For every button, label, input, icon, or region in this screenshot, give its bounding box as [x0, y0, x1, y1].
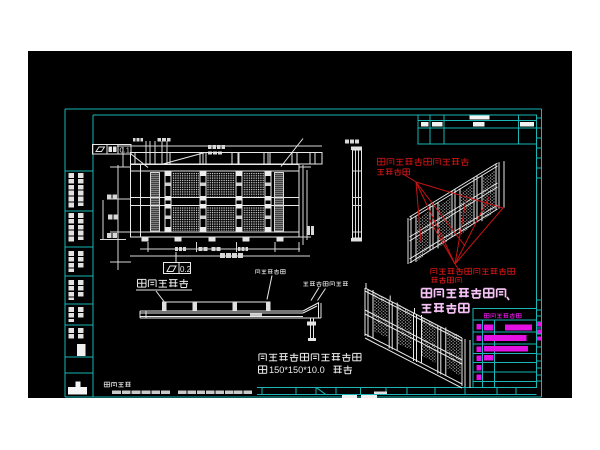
svg-text:150*150*10.0: 150*150*10.0: [269, 365, 325, 375]
svg-text:0.2: 0.2: [180, 265, 192, 274]
svg-text:0.1: 0.1: [120, 146, 130, 155]
